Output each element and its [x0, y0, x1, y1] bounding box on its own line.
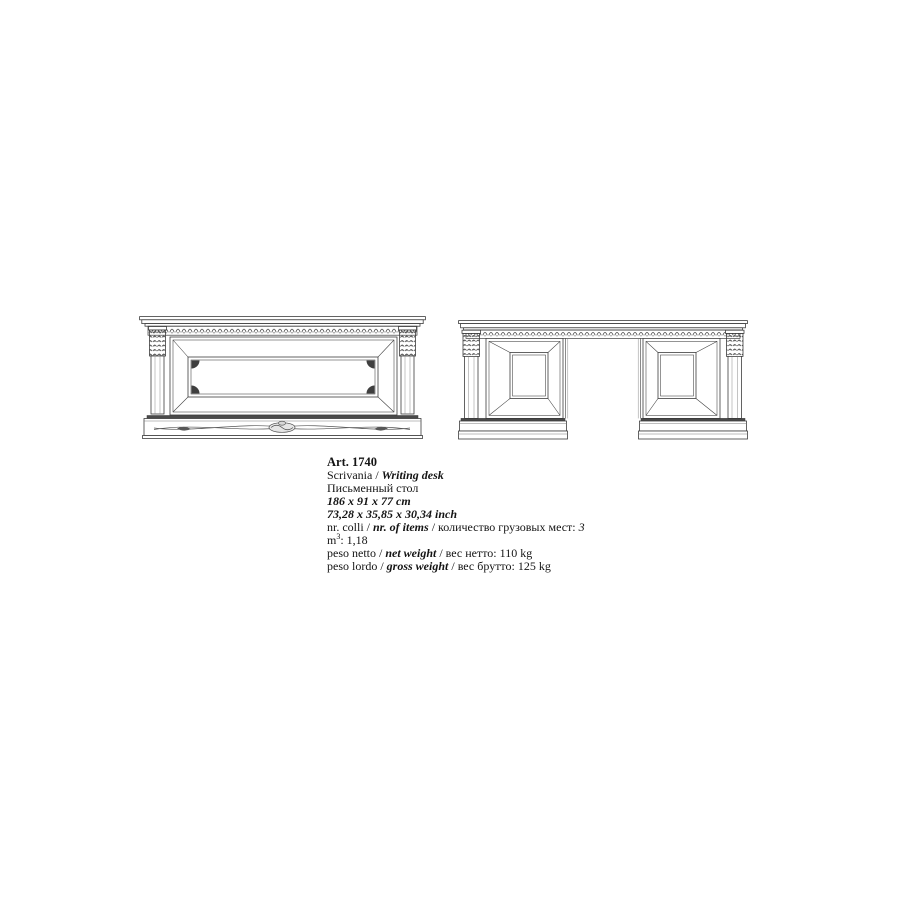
- title-english: Writing desk: [382, 468, 444, 482]
- volume-value: : 1,18: [340, 533, 367, 547]
- pedestal-right: [638, 338, 720, 418]
- carved-frieze: [148, 326, 417, 335]
- volume-unit: m: [327, 533, 336, 547]
- packing-label-en: nr. of items: [373, 520, 429, 534]
- desk-back-view-figure: [139, 316, 426, 440]
- gross-label-it: peso lordo /: [327, 559, 387, 573]
- pilaster-right: [726, 330, 745, 418]
- carved-frieze: [466, 330, 740, 338]
- packing-value: 3: [579, 520, 585, 534]
- packing-label-ru: / количество грузовых мест:: [429, 520, 579, 534]
- back-panel: [170, 337, 397, 415]
- pilaster-left: [462, 330, 481, 418]
- tabletop: [140, 317, 426, 327]
- gross-weight-line: peso lordo / gross weight / вес брутто: …: [327, 560, 585, 573]
- tabletop: [459, 321, 748, 330]
- spec-block: Art. 1740 Scrivania / Writing desk Письм…: [327, 456, 585, 573]
- desk-back-view-drawing: [139, 316, 426, 440]
- pedestal-right-base: [639, 418, 748, 439]
- pilaster-left: [149, 327, 167, 415]
- net-label-it: peso netto /: [327, 546, 385, 560]
- catalog-page: Art. 1740 Scrivania / Writing desk Письм…: [0, 0, 900, 900]
- net-value: 110 kg: [500, 546, 533, 560]
- title-italian: Scrivania /: [327, 468, 382, 482]
- pedestal-left-base: [459, 418, 568, 439]
- gross-value: 125 kg: [518, 559, 551, 573]
- pedestal-left: [486, 338, 568, 418]
- packing-label-it: nr. colli /: [327, 520, 373, 534]
- net-label-ru: / вес нетто:: [436, 546, 499, 560]
- pilaster-right: [399, 327, 417, 415]
- desk-front-view-figure: [458, 320, 748, 440]
- net-label-en: net weight: [385, 546, 436, 560]
- plinth-base: [143, 416, 423, 439]
- gross-label-en: gross weight: [387, 559, 449, 573]
- gross-label-ru: / вес брутто:: [448, 559, 518, 573]
- desk-front-view-drawing: [458, 320, 748, 440]
